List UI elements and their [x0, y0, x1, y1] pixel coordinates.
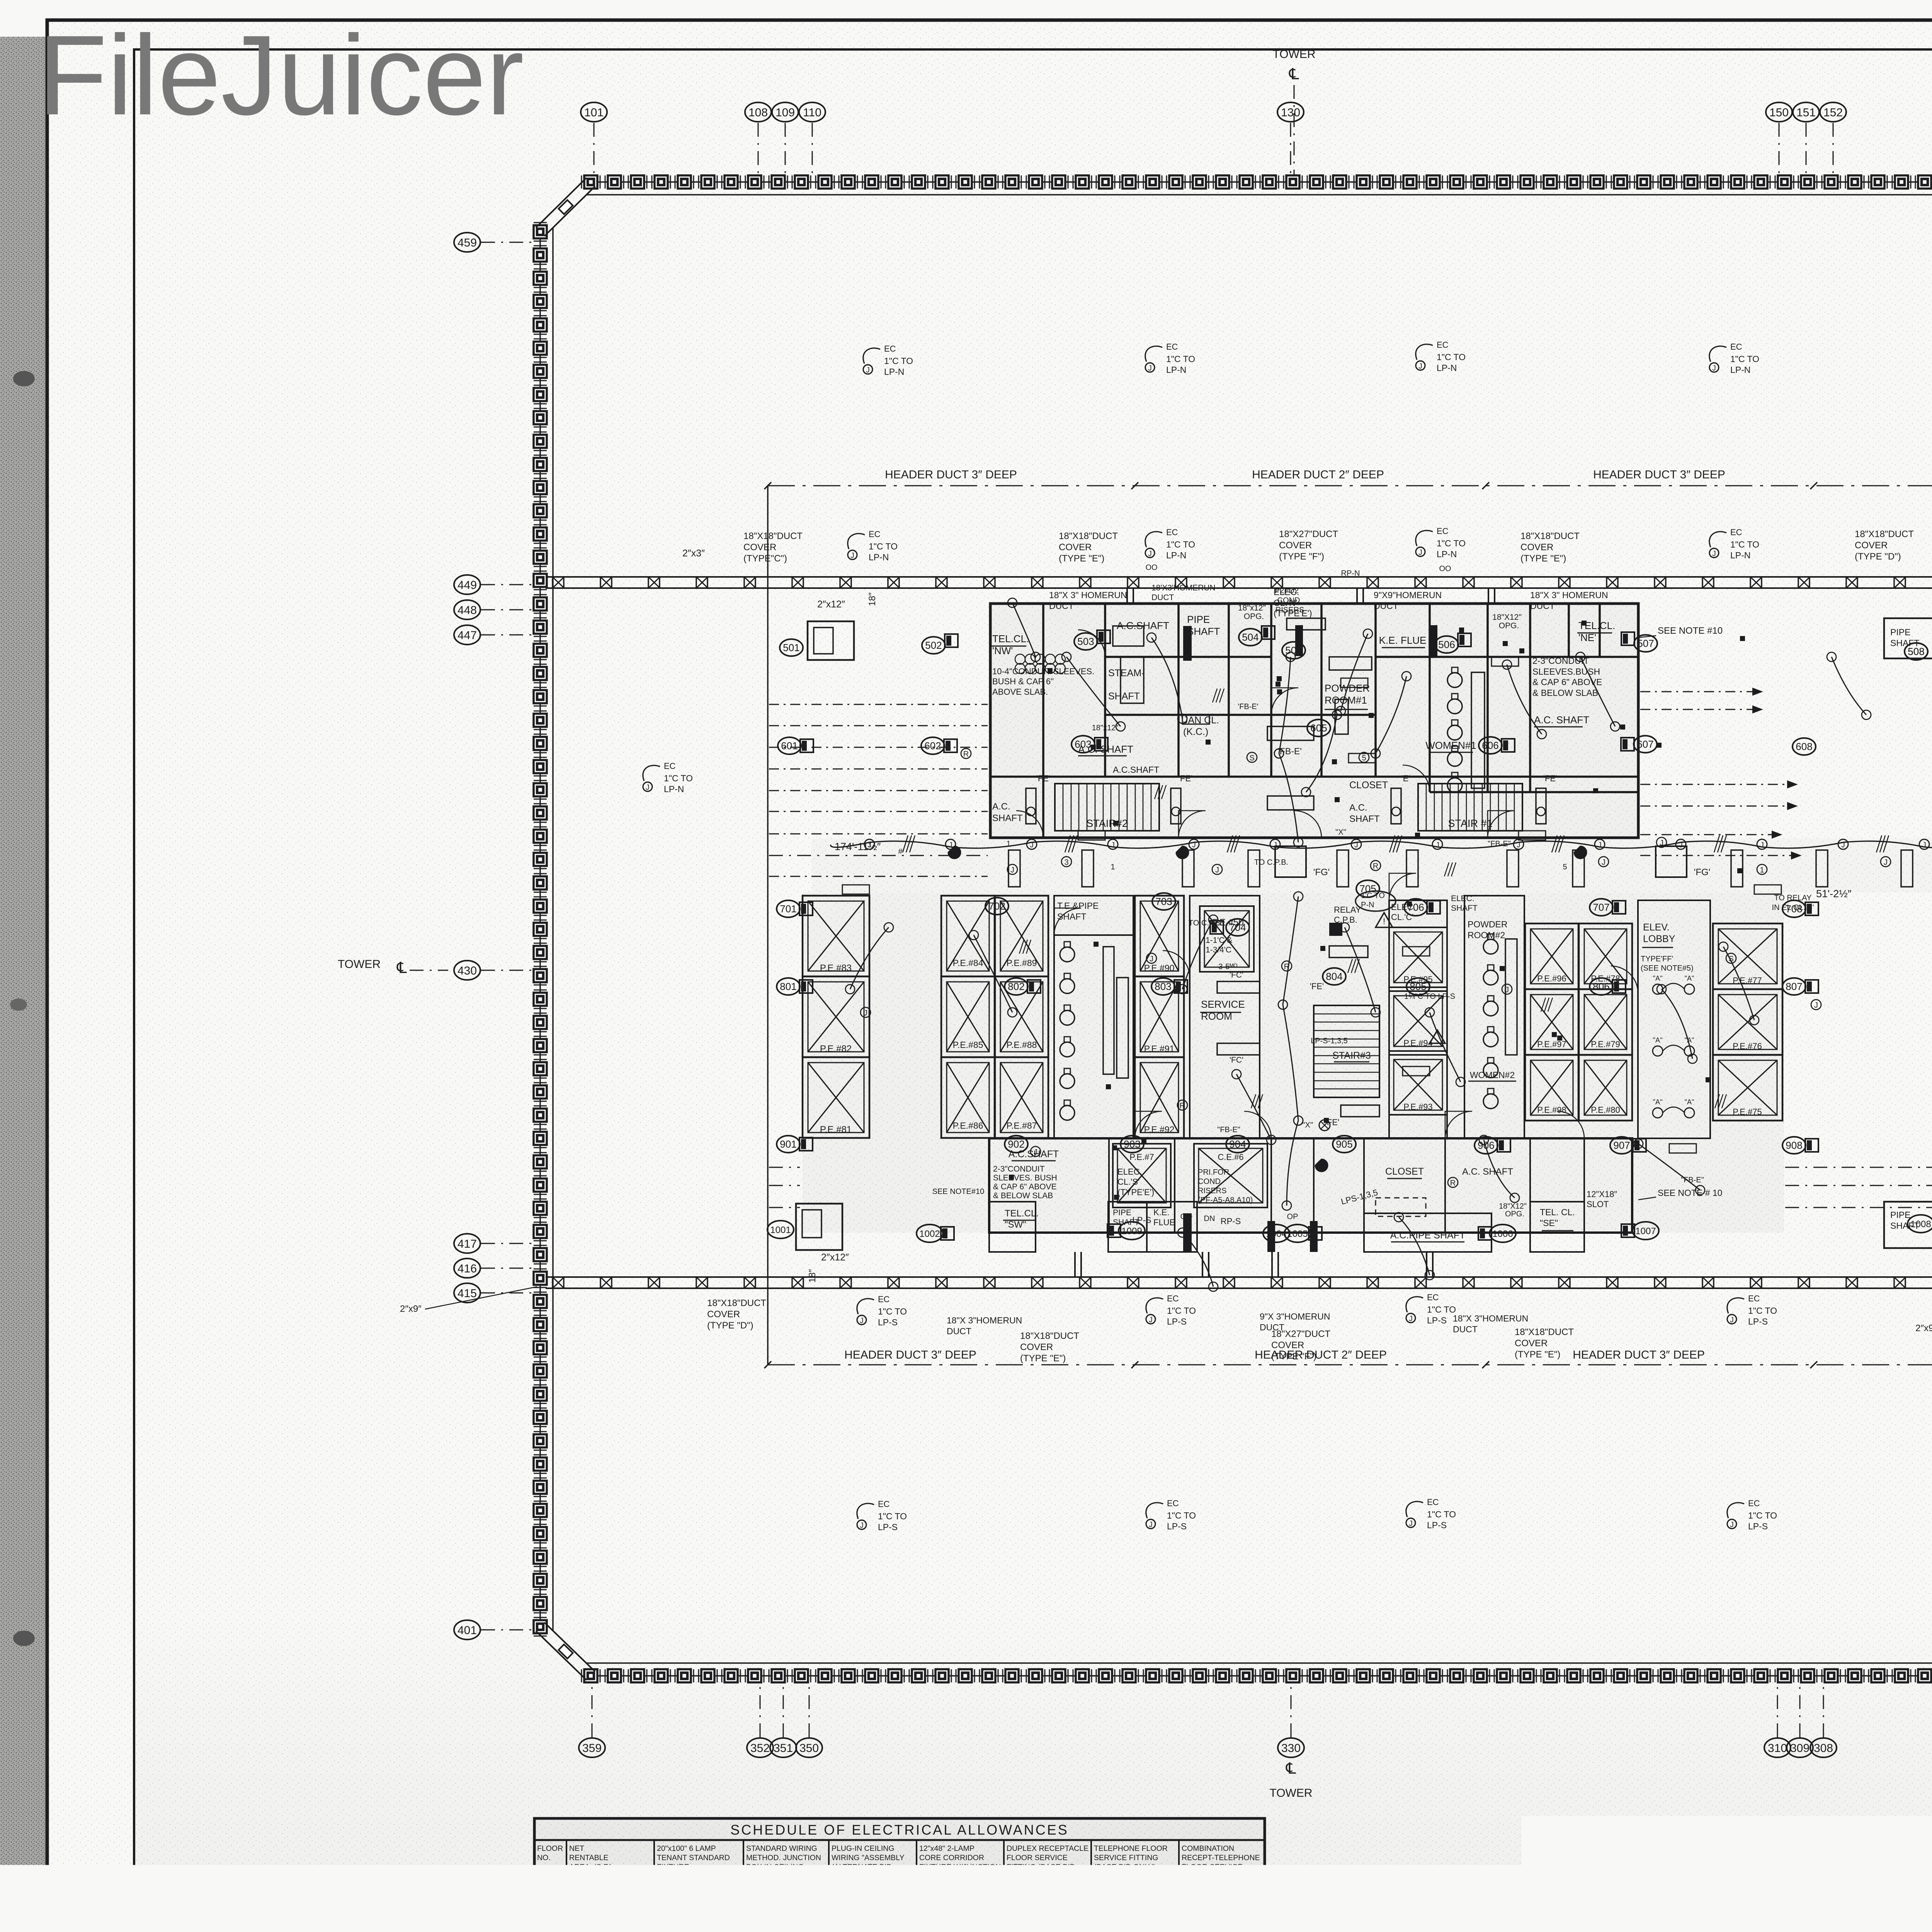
svg-text:EC: EC: [1437, 526, 1449, 536]
svg-text:416: 416: [457, 1262, 477, 1275]
svg-text:501: 501: [783, 642, 799, 653]
svg-text:2″x12″: 2″x12″: [821, 1252, 849, 1263]
svg-text:1"C TO: 1"C TO: [1730, 539, 1759, 549]
svg-text:352: 352: [750, 1742, 770, 1755]
svg-text:DUCT: DUCT: [1260, 1322, 1284, 1332]
svg-text:J: J: [1712, 550, 1716, 558]
svg-text:J: J: [1409, 1520, 1413, 1528]
svg-text:901: 901: [780, 1138, 796, 1150]
svg-text:EC: EC: [1748, 1498, 1760, 1508]
svg-text:110: 110: [803, 106, 821, 119]
svg-text:507: 507: [1637, 638, 1654, 649]
svg-text:2″x12″: 2″x12″: [817, 599, 845, 610]
svg-text:101: 101: [584, 106, 604, 119]
svg-text:LP-N: LP-N: [1166, 365, 1186, 375]
svg-text:2″x9″: 2″x9″: [1915, 1323, 1932, 1333]
svg-text:18″: 18″: [867, 592, 878, 606]
svg-text:J: J: [1712, 364, 1716, 372]
svg-text:459: 459: [457, 236, 477, 249]
svg-text:601: 601: [781, 740, 798, 752]
svg-text:EC: EC: [1427, 1293, 1439, 1302]
svg-text:(TYPE "E"): (TYPE "E"): [1059, 553, 1104, 564]
svg-text:109: 109: [776, 106, 795, 119]
svg-text:351: 351: [774, 1742, 793, 1755]
svg-text:(TYPE "E"): (TYPE "E"): [1020, 1353, 1066, 1364]
svg-text:1"C TO: 1"C TO: [664, 773, 693, 783]
svg-text:18"X18"DUCT: 18"X18"DUCT: [1855, 529, 1914, 539]
svg-text:DUCT: DUCT: [947, 1326, 971, 1336]
svg-text:415: 415: [457, 1287, 477, 1300]
svg-text:18"X18"DUCT: 18"X18"DUCT: [1520, 531, 1580, 541]
svg-text:607: 607: [1637, 738, 1653, 750]
svg-text:EC: EC: [1166, 527, 1178, 537]
svg-text:18″: 18″: [807, 1269, 818, 1283]
svg-text:J: J: [1730, 1316, 1734, 1324]
svg-text:COND: COND: [1277, 596, 1300, 605]
svg-text:(TYPE "F"): (TYPE "F"): [1271, 1351, 1316, 1362]
svg-text:430: 430: [457, 964, 477, 977]
svg-text:18"X 3"HOMERUN: 18"X 3"HOMERUN: [947, 1315, 1022, 1325]
svg-text:LP-N: LP-N: [1437, 363, 1457, 373]
svg-text:LP-S: LP-S: [1748, 1521, 1768, 1531]
svg-text:℄: ℄: [396, 959, 407, 976]
svg-text:J: J: [866, 366, 870, 374]
svg-text:807: 807: [1786, 981, 1802, 992]
svg-text:COVER: COVER: [707, 1309, 740, 1320]
svg-text:OO: OO: [1145, 563, 1157, 572]
svg-text:LP-S: LP-S: [1427, 1315, 1447, 1325]
svg-text:LP-S: LP-S: [1167, 1316, 1187, 1327]
svg-text:701: 701: [780, 903, 796, 915]
svg-text:401: 401: [457, 1624, 477, 1637]
svg-text:1"C TO: 1"C TO: [1437, 538, 1466, 548]
svg-text:EC: EC: [878, 1294, 890, 1304]
svg-text:COVER: COVER: [1059, 542, 1092, 553]
svg-text:801: 801: [780, 981, 796, 992]
svg-text:608: 608: [1796, 741, 1812, 752]
svg-text:9"X9"HOMERUN: 9"X9"HOMERUN: [1374, 590, 1442, 600]
svg-text:COVER: COVER: [1279, 540, 1312, 551]
svg-text:EC: EC: [1730, 527, 1742, 537]
svg-text:1001: 1001: [770, 1225, 791, 1235]
svg-text:LP-S: LP-S: [1748, 1316, 1768, 1327]
svg-text:108: 108: [748, 106, 768, 119]
svg-text:2″x3″: 2″x3″: [682, 548, 705, 559]
svg-text:COVER: COVER: [1855, 540, 1888, 551]
svg-text:LP-N: LP-N: [1166, 550, 1186, 560]
svg-text:EC: EC: [1427, 1497, 1439, 1507]
svg-text:EC: EC: [869, 529, 881, 539]
svg-text:1"C TO: 1"C TO: [1166, 539, 1195, 549]
svg-text:DUCT: DUCT: [1453, 1324, 1478, 1334]
svg-text:1"C TO: 1"C TO: [1437, 352, 1466, 362]
svg-text:18"X 3" HOMERUN: 18"X 3" HOMERUN: [1049, 590, 1127, 600]
svg-text:417: 417: [457, 1238, 477, 1250]
svg-text:P2̦FD2: P2̦FD2: [1275, 587, 1299, 595]
svg-text:COVER: COVER: [1520, 542, 1553, 553]
svg-text:18"X 3" HOMERUN: 18"X 3" HOMERUN: [1530, 590, 1608, 600]
svg-text:1"C TO: 1"C TO: [1730, 354, 1759, 364]
svg-text:FileJuicer: FileJuicer: [38, 12, 524, 139]
svg-text:HEADER DUCT 3″ DEEP: HEADER DUCT 3″ DEEP: [1573, 1349, 1705, 1361]
svg-text:J: J: [1418, 549, 1422, 557]
svg-text:J: J: [1149, 1521, 1153, 1529]
svg-text:℄: ℄: [1289, 66, 1299, 83]
svg-text:J: J: [1418, 362, 1422, 371]
svg-text:LP-S: LP-S: [878, 1522, 898, 1532]
svg-text:1"C TO: 1"C TO: [1748, 1510, 1777, 1520]
svg-text:447: 447: [457, 629, 477, 642]
svg-text:LP-N: LP-N: [1730, 550, 1750, 560]
svg-text:130: 130: [1281, 106, 1300, 119]
svg-text:J: J: [1148, 550, 1152, 558]
svg-text:152: 152: [1823, 106, 1843, 119]
svg-text:(TYPE "D"): (TYPE "D"): [707, 1320, 753, 1331]
svg-text:9"X 3"HOMERUN: 9"X 3"HOMERUN: [1260, 1311, 1330, 1321]
svg-text:CONTRACT BID DRAWING dat: CONTRACT BID DRAWING date OCT.16.1967: [1701, 1826, 1920, 1838]
svg-text:J: J: [1148, 364, 1152, 372]
svg-text:18"X27"DUCT: 18"X27"DUCT: [1279, 529, 1338, 539]
svg-text:COVER: COVER: [743, 542, 776, 553]
svg-text:COVER: COVER: [1271, 1340, 1304, 1350]
svg-text:350: 350: [799, 1742, 819, 1755]
svg-text:EC: EC: [1437, 340, 1449, 350]
svg-text:448: 448: [457, 604, 477, 617]
svg-text:449: 449: [457, 579, 477, 592]
svg-text:18'X3'HOMERUN: 18'X3'HOMERUN: [1151, 583, 1216, 592]
svg-text:LP-N: LP-N: [1437, 549, 1457, 559]
svg-text:(TYPE "E"): (TYPE "E"): [1515, 1349, 1560, 1360]
svg-text:1"C TO: 1"C TO: [1166, 354, 1195, 364]
svg-text:150: 150: [1769, 106, 1789, 119]
svg-text:EC: EC: [878, 1499, 890, 1509]
svg-text:EC: EC: [1748, 1294, 1760, 1303]
svg-text:COVER: COVER: [1020, 1342, 1053, 1352]
svg-text:LP-S: LP-S: [1167, 1521, 1187, 1531]
svg-text:18"X18"DUCT: 18"X18"DUCT: [707, 1298, 766, 1308]
svg-text:EC: EC: [1167, 1294, 1179, 1303]
svg-text:1"C TO: 1"C TO: [1167, 1510, 1196, 1520]
svg-text:J: J: [1730, 1521, 1734, 1529]
svg-text:(TYPE"C"): (TYPE"C"): [743, 553, 787, 564]
svg-text:310: 310: [1768, 1742, 1787, 1755]
svg-text:1"C TO: 1"C TO: [1748, 1306, 1777, 1316]
svg-text:J: J: [1409, 1315, 1413, 1323]
svg-text:(TYPE "F"): (TYPE "F"): [1279, 551, 1324, 562]
svg-text:R: R: [963, 750, 969, 759]
svg-text:J: J: [1149, 1316, 1153, 1324]
svg-text:18"X18"DUCT: 18"X18"DUCT: [743, 531, 803, 541]
svg-text:HEADER DUCT 3″ DEEP: HEADER DUCT 3″ DEEP: [844, 1349, 976, 1361]
svg-text:LP-N: LP-N: [884, 367, 904, 377]
svg-text:18"X18"DUCT: 18"X18"DUCT: [1020, 1331, 1079, 1341]
svg-text:TOWER: TOWER: [1272, 48, 1315, 61]
svg-text:DUCT: DUCT: [1151, 593, 1174, 602]
svg-text:1008: 1008: [1910, 1219, 1931, 1230]
svg-text:RP-N: RP-N: [1341, 569, 1360, 578]
svg-text:TOWER: TOWER: [1269, 1787, 1312, 1799]
svg-text:309: 309: [1790, 1742, 1810, 1755]
svg-text:1"C TO: 1"C TO: [1427, 1304, 1456, 1315]
svg-text:HEADER DUCT 2″ DEEP: HEADER DUCT 2″ DEEP: [1252, 468, 1384, 481]
svg-text:LP-N: LP-N: [869, 552, 889, 562]
svg-text:308: 308: [1814, 1742, 1833, 1755]
svg-text:EC: EC: [1167, 1498, 1179, 1508]
svg-text:2″x9″: 2″x9″: [400, 1304, 422, 1314]
svg-text:602: 602: [924, 740, 941, 752]
svg-text:HEADER DUCT 3″ DEEP: HEADER DUCT 3″ DEEP: [1593, 468, 1725, 481]
svg-text:EC: EC: [1730, 342, 1742, 352]
svg-text:℄: ℄: [1286, 1760, 1296, 1777]
svg-text:EC: EC: [664, 761, 676, 771]
svg-text:1"C TO: 1"C TO: [878, 1511, 907, 1521]
svg-text:PIPE: PIPE: [1890, 627, 1910, 637]
svg-text:OO: OO: [1439, 565, 1451, 573]
svg-text:J: J: [860, 1317, 864, 1325]
svg-text:PIPE: PIPE: [1890, 1210, 1910, 1220]
svg-text:LP-N: LP-N: [664, 784, 684, 794]
svg-text:COVER: COVER: [1515, 1338, 1548, 1349]
svg-text:HEADER DUCT 3″ DEEP: HEADER DUCT 3″ DEEP: [885, 468, 1017, 481]
svg-text:LP-S: LP-S: [1427, 1520, 1447, 1530]
svg-text:TOWER: TOWER: [338, 958, 381, 971]
svg-text:508: 508: [1908, 646, 1924, 657]
svg-text:1"C TO: 1"C TO: [878, 1306, 907, 1316]
svg-text:1"C TO: 1"C TO: [869, 541, 898, 551]
svg-text:EC: EC: [1166, 342, 1178, 352]
svg-text:1"C TO: 1"C TO: [1427, 1509, 1456, 1519]
svg-text:SEE NOTE #10: SEE NOTE #10: [1658, 626, 1723, 636]
svg-text:908: 908: [1786, 1139, 1802, 1151]
svg-text:18"X18"DUCT: 18"X18"DUCT: [1515, 1327, 1574, 1337]
svg-text:502: 502: [925, 639, 942, 651]
svg-text:LP-N: LP-N: [1730, 365, 1750, 375]
svg-text:J: J: [860, 1522, 864, 1530]
svg-text:1"C TO: 1"C TO: [1167, 1306, 1196, 1316]
svg-text:359: 359: [582, 1742, 602, 1755]
svg-text:LP-S: LP-S: [878, 1317, 898, 1327]
svg-text:330: 330: [1281, 1742, 1301, 1755]
svg-text:(TYPE "E"): (TYPE "E"): [1520, 553, 1566, 564]
svg-text:J: J: [850, 552, 854, 560]
svg-text:18"X 3"HOMERUN: 18"X 3"HOMERUN: [1453, 1313, 1528, 1323]
svg-text:J: J: [1814, 1001, 1818, 1010]
svg-text:151: 151: [1796, 106, 1816, 119]
svg-text:(TYPE "D"): (TYPE "D"): [1855, 551, 1901, 562]
svg-text:J: J: [646, 784, 650, 792]
svg-text:EC: EC: [884, 344, 896, 354]
svg-text:18"X18"DUCT: 18"X18"DUCT: [1059, 531, 1118, 541]
svg-text:1"C TO: 1"C TO: [884, 356, 913, 366]
